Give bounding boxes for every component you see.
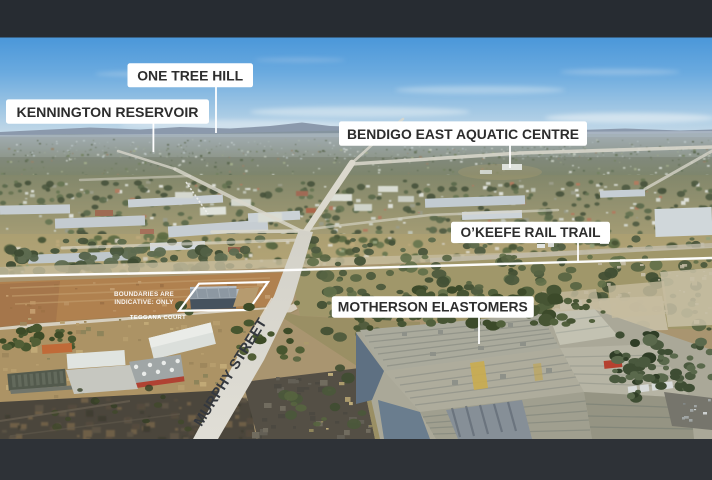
svg-text:KENNINGTON RESERVOIR: KENNINGTON RESERVOIR	[17, 104, 199, 120]
svg-text:O’KEEFE RAIL TRAIL: O’KEEFE RAIL TRAIL	[461, 224, 601, 240]
svg-text:BENDIGO EAST AQUATIC CENTRE: BENDIGO EAST AQUATIC CENTRE	[347, 126, 579, 142]
svg-text:TEGGANA COURT: TEGGANA COURT	[130, 315, 186, 321]
svg-text:MOTHERSON ELASTOMERS: MOTHERSON ELASTOMERS	[338, 299, 528, 315]
svg-text:INDICATIVE: ONLY: INDICATIVE: ONLY	[114, 299, 174, 306]
svg-text:ONE TREE HILL: ONE TREE HILL	[137, 68, 243, 84]
svg-text:BOUNDARIES ARE: BOUNDARIES ARE	[114, 291, 174, 298]
